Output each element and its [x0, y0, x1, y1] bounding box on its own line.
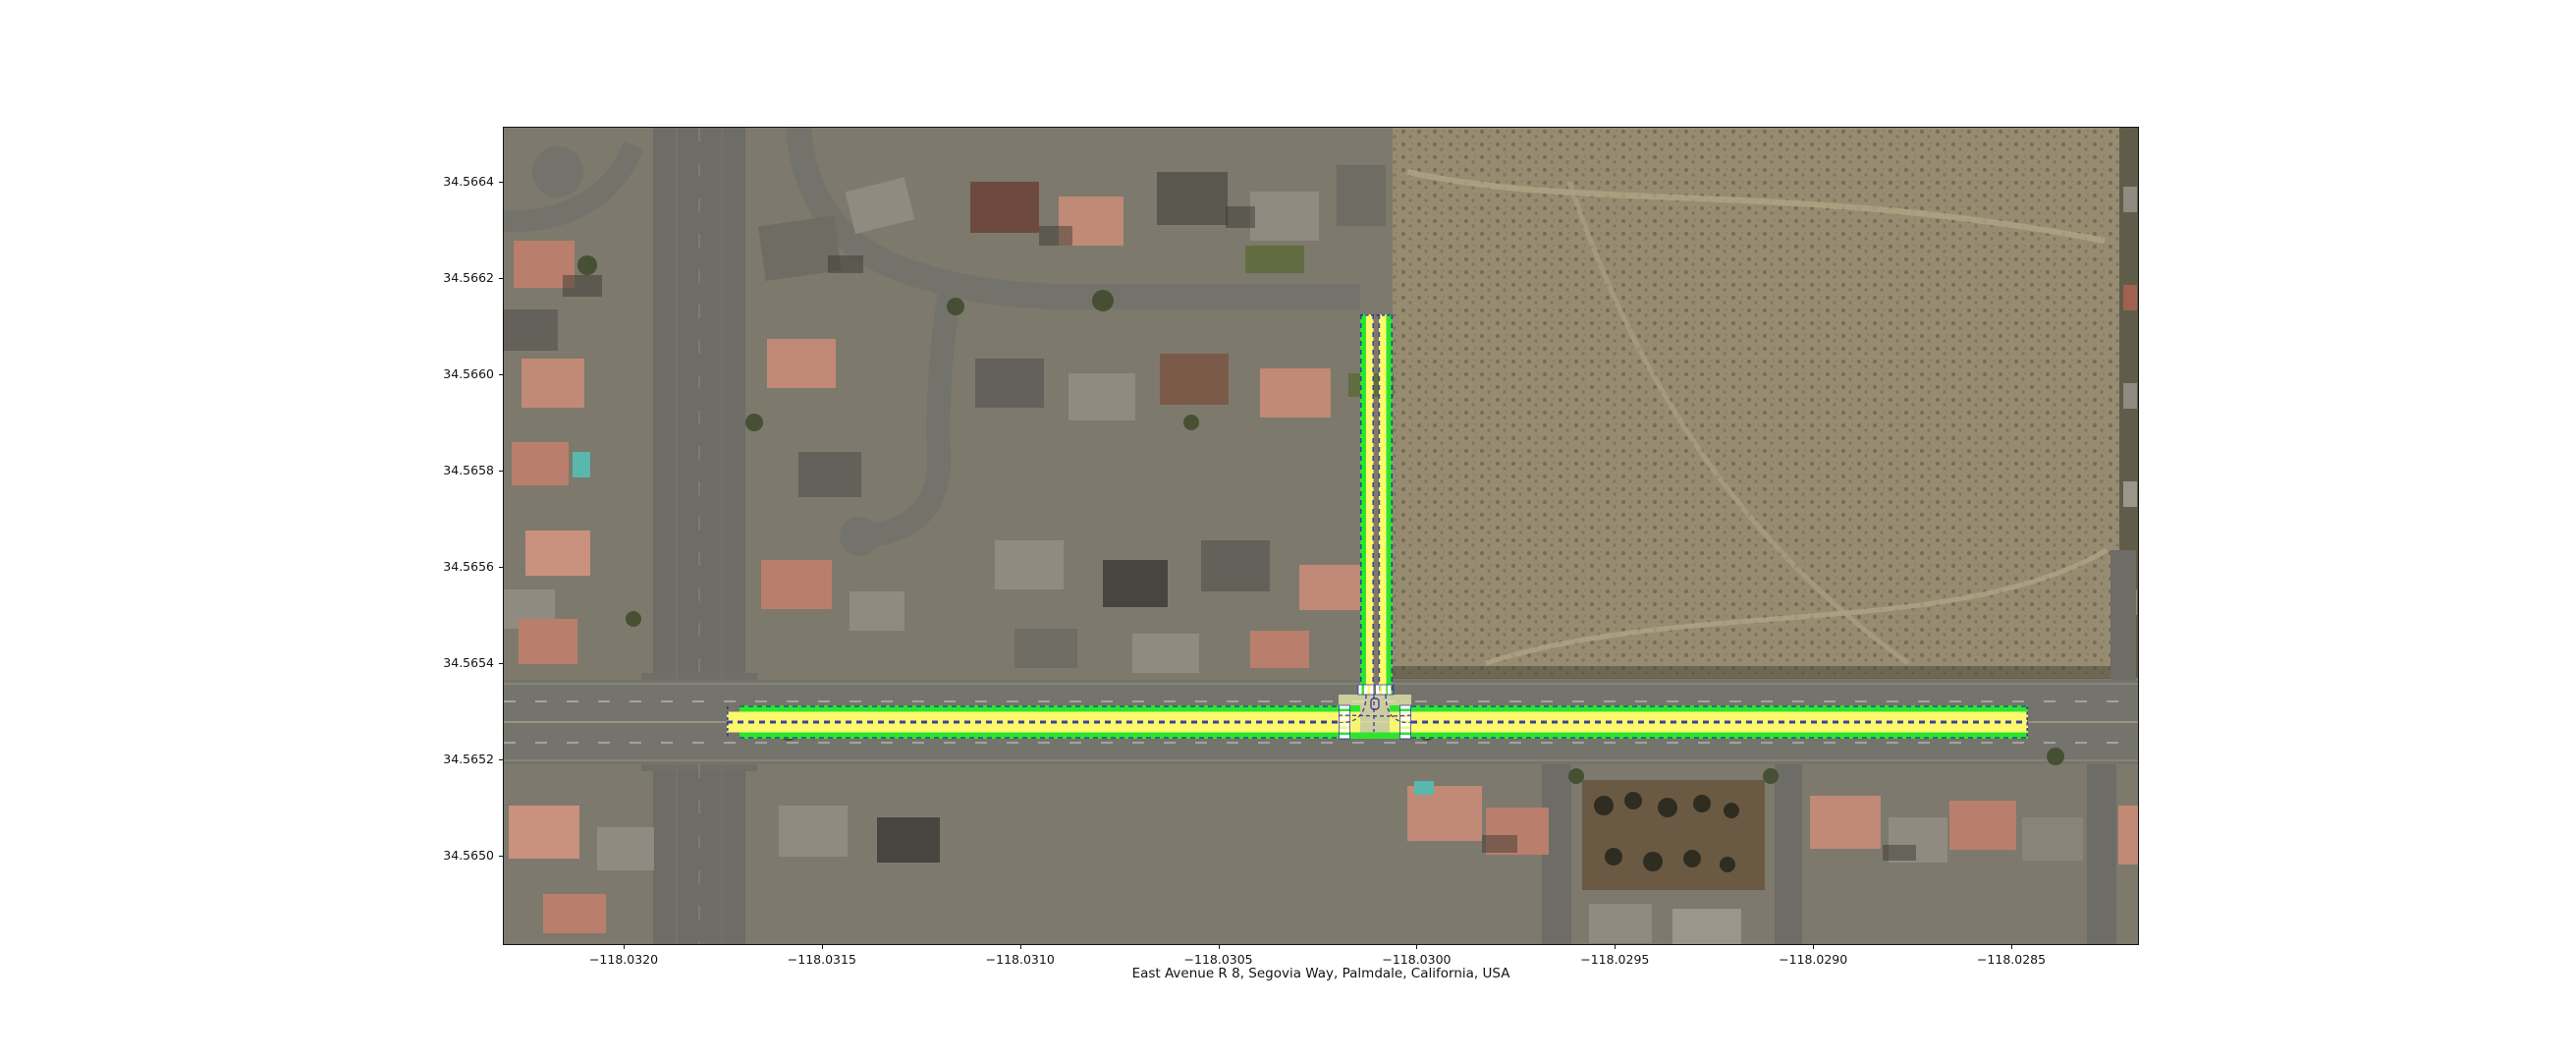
- x-tick-mark: [822, 945, 823, 949]
- x-tick-label: −118.0310: [961, 952, 1079, 967]
- matplotlib-figure: 34.566434.566234.566034.565834.565634.56…: [0, 0, 2576, 1061]
- x-tick-mark: [2011, 945, 2012, 949]
- map-plot: [504, 128, 2138, 944]
- y-tick-label: 34.5664: [386, 174, 494, 189]
- plot-title: East Avenue R 8, Segovia Way, Palmdale, …: [504, 966, 2138, 981]
- x-tick-mark: [1416, 945, 1417, 949]
- y-tick-label: 34.5662: [386, 270, 494, 285]
- x-tick-label: −118.0315: [763, 952, 881, 967]
- y-tick-label: 34.5658: [386, 463, 494, 477]
- y-tick-mark: [499, 663, 503, 664]
- y-tick-mark: [499, 374, 503, 375]
- x-tick-label: −118.0320: [565, 952, 683, 967]
- y-tick-mark: [499, 278, 503, 279]
- x-tick-label: −118.0305: [1160, 952, 1278, 967]
- x-tick-mark: [1219, 945, 1220, 949]
- x-tick-label: −118.0285: [1952, 952, 2070, 967]
- x-tick-mark: [624, 945, 625, 949]
- overlay-junction: [1339, 685, 1411, 739]
- x-tick-label: −118.0290: [1754, 952, 1872, 967]
- y-tick-label: 34.5656: [386, 559, 494, 574]
- x-tick-label: −118.0295: [1556, 952, 1673, 967]
- y-tick-label: 34.5660: [386, 366, 494, 381]
- overlay-horizontal-west: [727, 705, 1339, 739]
- y-tick-mark: [499, 471, 503, 472]
- y-tick-label: 34.5652: [386, 752, 494, 766]
- y-tick-mark: [499, 567, 503, 568]
- x-tick-mark: [1020, 945, 1021, 949]
- y-tick-label: 34.5650: [386, 848, 494, 863]
- overlay-horizontal-east: [1411, 705, 2028, 739]
- road-network-overlay: [504, 128, 2138, 944]
- y-tick-label: 34.5654: [386, 655, 494, 670]
- overlay-vertical-road: [1360, 314, 1393, 695]
- y-tick-mark: [499, 182, 503, 183]
- x-tick-mark: [1615, 945, 1616, 949]
- y-tick-mark: [499, 856, 503, 857]
- y-tick-mark: [499, 759, 503, 760]
- x-tick-label: −118.0300: [1357, 952, 1475, 967]
- x-tick-mark: [1813, 945, 1814, 949]
